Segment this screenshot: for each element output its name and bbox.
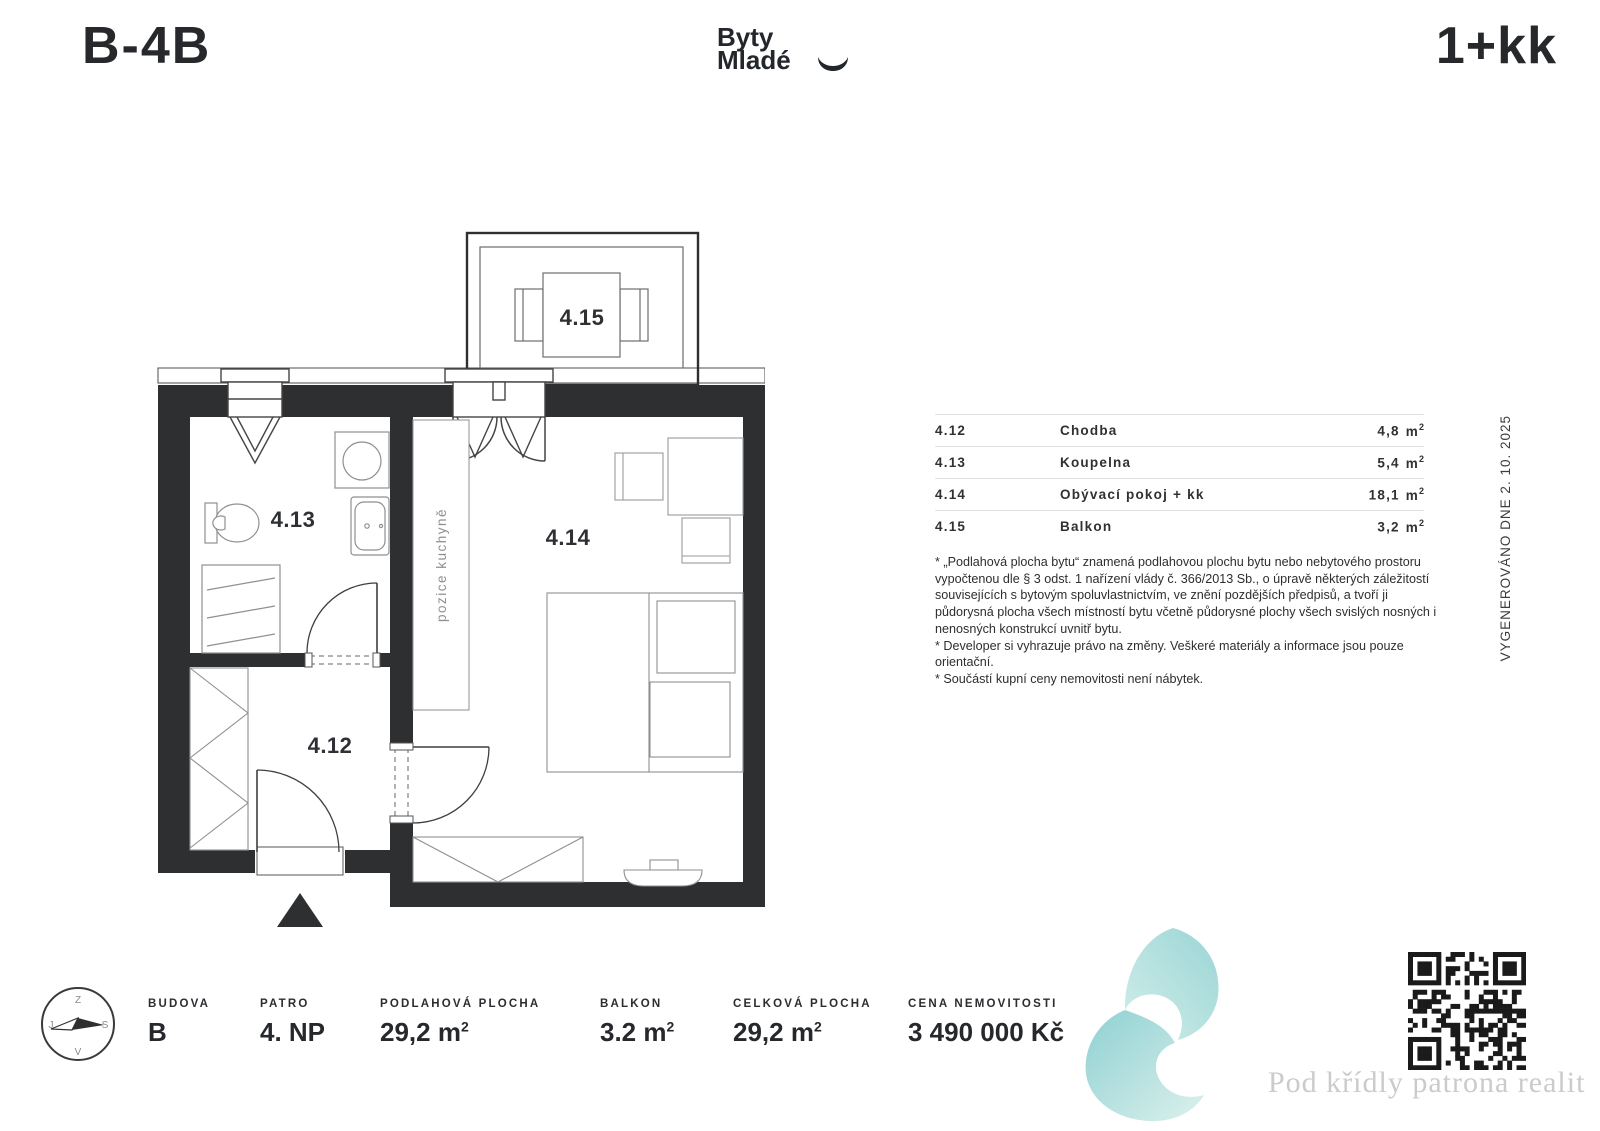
room-label-living: 4.14	[546, 525, 591, 550]
stat-label: BUDOVA	[148, 998, 210, 1010]
room-code: 4.12	[935, 423, 1060, 438]
brand-line2: Mladé	[717, 49, 791, 72]
room-code: 4.15	[935, 519, 1060, 534]
stat-label: PATRO	[260, 998, 325, 1010]
room-label-balcony: 4.15	[560, 305, 605, 330]
stat-value: 3 490 000 Kč	[908, 1017, 1064, 1048]
stat-value: 29,2 m2	[733, 1017, 872, 1048]
compass-z: Z	[75, 995, 81, 1006]
sink-icon	[351, 497, 389, 555]
stat-label: CENA NEMOVITOSTI	[908, 998, 1064, 1010]
hallway-wardrobe-icon	[190, 668, 248, 850]
stat-value: 3.2 m2	[600, 1017, 674, 1048]
stat-label: PODLAHOVÁ PLOCHA	[380, 998, 540, 1010]
washing-machine-icon	[335, 432, 389, 488]
room-name: Chodba	[1060, 423, 1377, 438]
compass-v: V	[75, 1047, 82, 1058]
bathroom-window-icon	[221, 369, 289, 463]
qr-code	[1408, 952, 1526, 1070]
room-area: 18,1m2	[1369, 486, 1424, 503]
room-label-bathroom: 4.13	[271, 507, 316, 532]
disclaimer-note-2: * Developer si vyhrazuje právo na změny.…	[935, 638, 1449, 671]
smile-swoosh-icon	[817, 55, 849, 73]
stat-balkon: BALKON 3.2 m2	[600, 998, 674, 1048]
stat-podlahova-plocha: PODLAHOVÁ PLOCHA 29,2 m2	[380, 998, 540, 1048]
disclaimer-notes: * „Podlahová plocha bytu“ znamená podlah…	[935, 554, 1449, 688]
room-area: 5,4m2	[1377, 454, 1424, 471]
room-code: 4.14	[935, 487, 1060, 502]
stat-celkova-plocha: CELKOVÁ PLOCHA 29,2 m2	[733, 998, 872, 1048]
room-area-table: 4.12 Chodba 4,8m2 4.13 Koupelna 5,4m2 4.…	[935, 414, 1424, 542]
compass-s: S	[102, 1020, 109, 1031]
entrance-arrow-icon	[277, 893, 323, 927]
disclaimer-note-3: * Součástí kupní ceny nemovitosti není n…	[935, 671, 1449, 688]
brand-logo: Byty Mladé	[717, 26, 791, 72]
room-name: Koupelna	[1060, 455, 1377, 470]
room-area: 3,2m2	[1377, 518, 1424, 535]
radiator-icon	[624, 860, 702, 886]
table-row: 4.13 Koupelna 5,4m2	[935, 446, 1424, 478]
kitchen-note: pozice kuchyně	[434, 508, 449, 622]
desk-and-chair-icon	[615, 438, 743, 563]
stat-label: BALKON	[600, 998, 674, 1010]
stat-value: B	[148, 1017, 210, 1048]
bed-icon	[547, 593, 743, 772]
table-row: 4.15 Balkon 3,2m2	[935, 510, 1424, 542]
room-name: Balkon	[1060, 519, 1377, 534]
room-area: 4,8m2	[1377, 422, 1424, 439]
compass-icon: Z S V J	[38, 984, 118, 1064]
stat-value: 4. NP	[260, 1017, 325, 1048]
shower-icon	[202, 565, 280, 653]
layout-type: 1+kk	[1436, 16, 1557, 76]
room-code: 4.13	[935, 455, 1060, 470]
living-wardrobe-icon	[413, 837, 583, 882]
floorplan-drawing: pozice kuchyně 4.15 4.13 4.14 4.12	[145, 215, 765, 935]
disclaimer-note-1: * „Podlahová plocha bytu“ znamená podlah…	[935, 554, 1449, 638]
table-row: 4.14 Obývací pokoj + kk 18,1m2	[935, 478, 1424, 510]
agency-swirl-logo	[1078, 922, 1228, 1122]
stat-label: CELKOVÁ PLOCHA	[733, 998, 872, 1010]
stat-cena-nemovitosti: CENA NEMOVITOSTI 3 490 000 Kč	[908, 998, 1064, 1048]
page-title: B-4B	[82, 16, 211, 76]
floorplan-sheet: { "header": { "unit_code": "B-4B", "bran…	[0, 0, 1600, 1131]
watermark-text: Pod křídly patrona realit	[1268, 1066, 1585, 1100]
generated-date-note: VYGENEROVÁNO DNE 2. 10. 2025	[1498, 415, 1513, 661]
room-name: Obývací pokoj + kk	[1060, 487, 1369, 502]
table-row: 4.12 Chodba 4,8m2	[935, 414, 1424, 446]
entrance-door-icon	[257, 770, 343, 875]
toilet-icon	[205, 503, 259, 543]
room-label-hallway: 4.12	[308, 733, 353, 758]
stat-patro: PATRO 4. NP	[260, 998, 325, 1048]
stat-budova: BUDOVA B	[148, 998, 210, 1048]
stat-value: 29,2 m2	[380, 1017, 540, 1048]
